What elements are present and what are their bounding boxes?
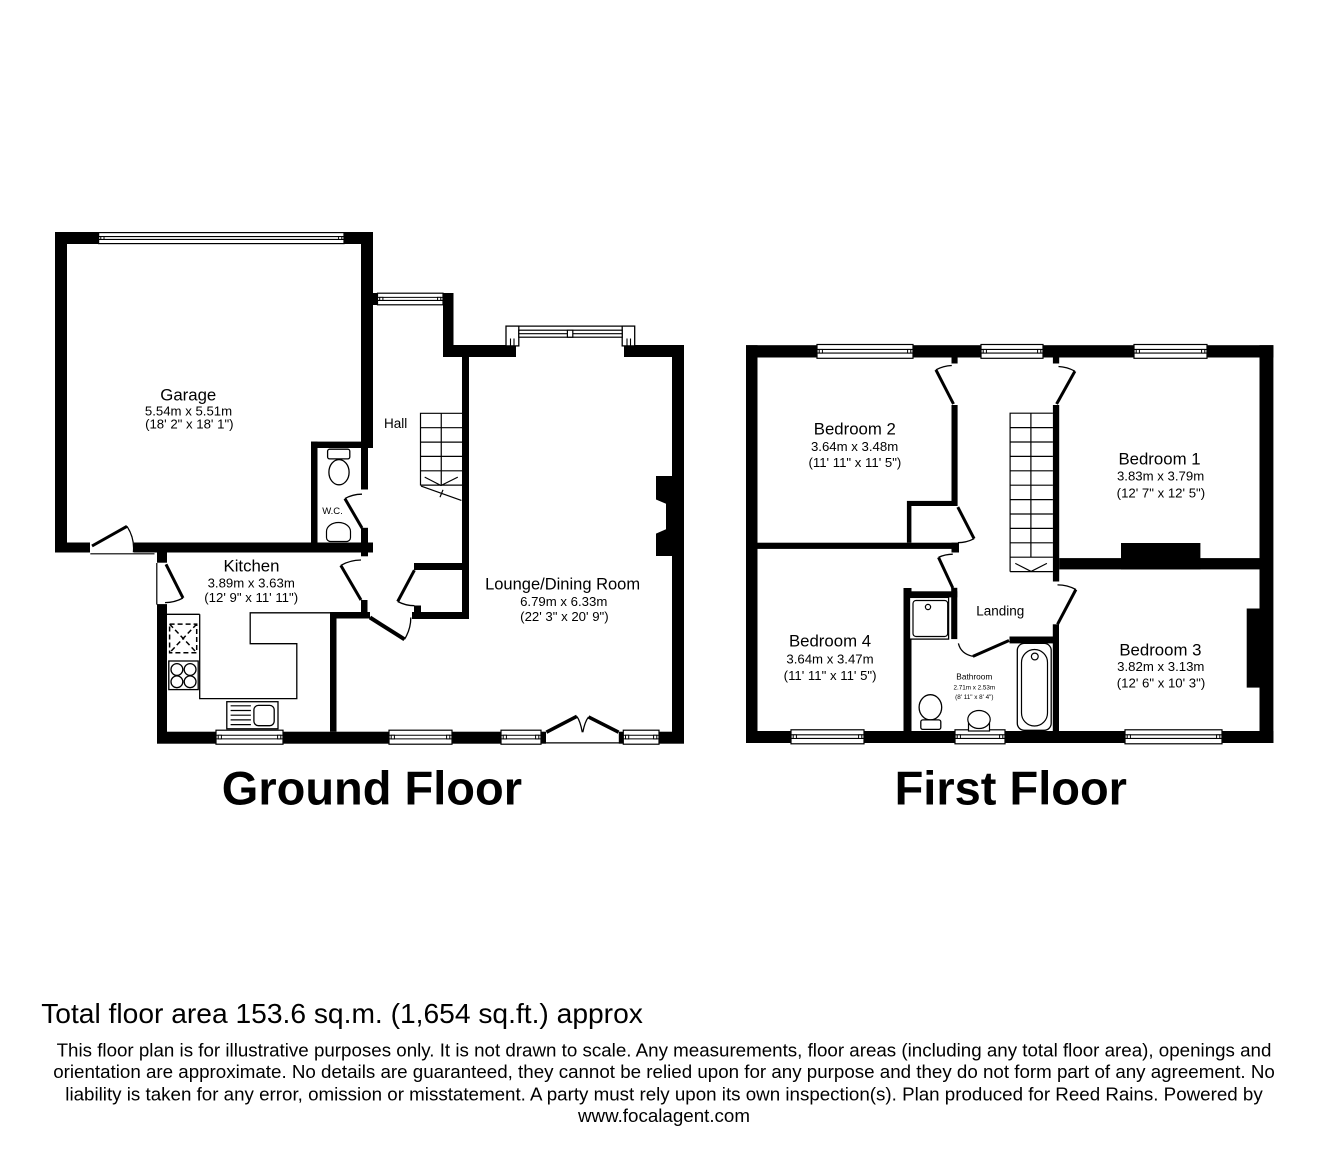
svg-text:Bedroom 2: Bedroom 2 xyxy=(814,420,896,439)
svg-text:liability is taken for any err: liability is taken for any error, omissi… xyxy=(65,1083,1263,1104)
svg-text:Bathroom: Bathroom xyxy=(956,672,992,682)
svg-text:Garage: Garage xyxy=(160,386,216,405)
svg-text:(8' 11" x 8' 4"): (8' 11" x 8' 4") xyxy=(955,694,993,701)
svg-text:3.83m x 3.79m: 3.83m x 3.79m xyxy=(1117,469,1204,484)
svg-text:W.C.: W.C. xyxy=(322,506,343,517)
svg-text:3.82m x 3.13m: 3.82m x 3.13m xyxy=(1117,659,1204,674)
svg-text:Landing: Landing xyxy=(976,604,1024,619)
svg-text:Kitchen: Kitchen xyxy=(224,557,280,576)
svg-text:www.focalagent.com: www.focalagent.com xyxy=(577,1105,750,1126)
svg-text:This floor plan is for illustr: This floor plan is for illustrative purp… xyxy=(57,1040,1272,1061)
svg-text:2.71m x 2.53m: 2.71m x 2.53m xyxy=(953,685,995,692)
svg-text:(22' 3" x 20' 9"): (22' 3" x 20' 9") xyxy=(520,609,608,624)
svg-text:(12' 6" x 10' 3"): (12' 6" x 10' 3") xyxy=(1117,676,1205,691)
svg-text:First Floor: First Floor xyxy=(895,762,1127,815)
svg-text:Ground Floor: Ground Floor xyxy=(222,762,522,815)
svg-text:(12' 9" x 11' 11"): (12' 9" x 11' 11") xyxy=(204,590,298,605)
svg-text:Lounge/Dining Room: Lounge/Dining Room xyxy=(485,575,640,593)
svg-text:6.79m x 6.33m: 6.79m x 6.33m xyxy=(520,594,607,609)
svg-text:3.89m x 3.63m: 3.89m x 3.63m xyxy=(208,575,295,590)
svg-text:3.64m x 3.47m: 3.64m x 3.47m xyxy=(786,652,873,667)
svg-text:3.64m x 3.48m: 3.64m x 3.48m xyxy=(811,439,898,454)
svg-text:Bedroom 4: Bedroom 4 xyxy=(789,632,871,651)
svg-text:Bedroom 1: Bedroom 1 xyxy=(1118,449,1200,468)
svg-text:Bedroom 3: Bedroom 3 xyxy=(1119,640,1201,659)
svg-text:orientation are approximate. N: orientation are approximate. No details … xyxy=(53,1061,1275,1082)
svg-text:(11' 11" x 11' 5"): (11' 11" x 11' 5") xyxy=(808,455,901,470)
svg-text:Hall: Hall xyxy=(384,416,407,431)
svg-text:Total floor area 153.6 sq.m. (: Total floor area 153.6 sq.m. (1,654 sq.f… xyxy=(41,997,643,1029)
svg-text:(11' 11" x 11' 5"): (11' 11" x 11' 5") xyxy=(784,668,877,683)
svg-text:(18' 2" x 18' 1"): (18' 2" x 18' 1") xyxy=(145,417,233,432)
svg-text:(12' 7" x 12' 5"): (12' 7" x 12' 5") xyxy=(1117,486,1205,501)
